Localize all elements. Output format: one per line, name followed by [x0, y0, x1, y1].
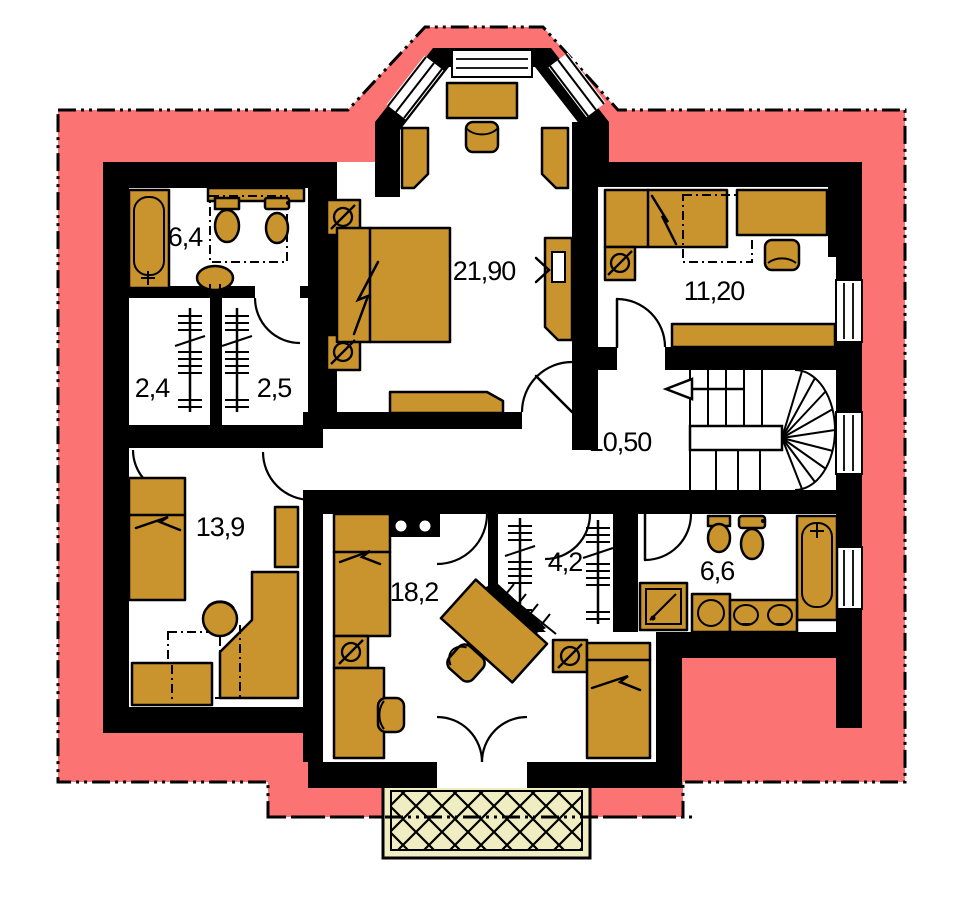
floor-plan-page: 6,4 2,4 2,5 21,90 11,20 10,50 13,9 18,2 … [0, 0, 963, 900]
room-area-label: 18,2 [390, 577, 439, 607]
room-closet-b [222, 298, 308, 425]
cabinet-icon [402, 128, 428, 188]
counter-icon [385, 514, 440, 537]
toilet-icon [708, 516, 730, 552]
room-area-label: 10,50 [589, 427, 652, 457]
room-closet-a [129, 298, 210, 425]
room-area-label: 4,2 [548, 547, 583, 577]
bidet-icon [739, 516, 765, 559]
room-area-label: 21,90 [453, 256, 516, 286]
bed-icon [334, 514, 390, 636]
room-area-label: 6,6 [700, 556, 735, 586]
chair-icon [765, 240, 799, 270]
bed-icon [334, 668, 384, 758]
room-area-label: 2,5 [257, 373, 292, 403]
bed-icon [129, 478, 185, 600]
floor-plan: 6,4 2,4 2,5 21,90 11,20 10,50 13,9 18,2 … [0, 0, 963, 900]
double-sink-icon [730, 600, 797, 632]
tv-icon [552, 252, 565, 282]
cabinet-icon [542, 128, 568, 188]
bathtub-icon [129, 190, 169, 288]
shelf-icon [672, 324, 835, 347]
sink-icon [197, 266, 233, 290]
desk-icon [737, 190, 827, 235]
room-area-label: 2,4 [135, 373, 171, 403]
wardrobe-icon [275, 507, 298, 567]
chair-icon [378, 698, 404, 732]
washing-machine-icon [692, 594, 730, 632]
room-area-label: 6,4 [168, 222, 204, 252]
room-area-label: 11,20 [684, 276, 745, 306]
chair-icon [466, 122, 498, 152]
bidet-icon [265, 198, 290, 243]
toilet-icon [215, 198, 239, 242]
bathtub-icon [797, 516, 837, 620]
chair-icon [203, 601, 237, 636]
dresser-icon [390, 392, 503, 413]
double-bed-icon [337, 228, 450, 342]
shower-icon [640, 583, 687, 630]
room-area-label: 13,9 [196, 512, 245, 542]
